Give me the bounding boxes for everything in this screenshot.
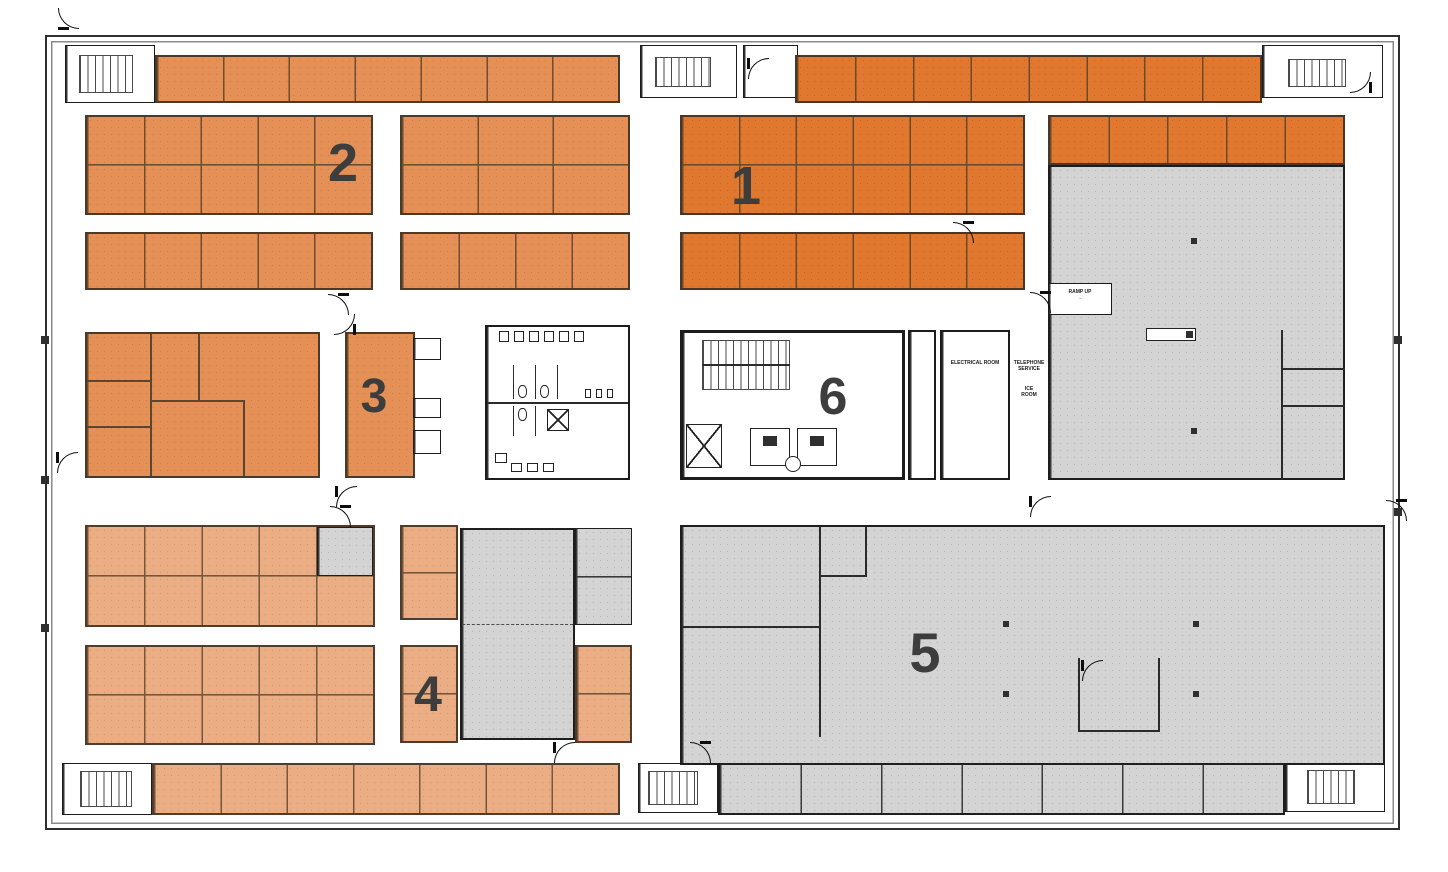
alcove: [413, 338, 441, 360]
wall: [819, 575, 867, 577]
toilet-icon: [540, 385, 549, 398]
stairs-top-right-icon: [1288, 59, 1346, 87]
lab-bench-line: [462, 624, 573, 625]
stairs-bottom-left-icon: [80, 771, 132, 807]
toilet-icon: [518, 385, 527, 398]
dock-leveler-latch: [1186, 331, 1193, 338]
wall-pilaster: [1394, 508, 1402, 516]
zone-4-right-orange: [575, 645, 632, 743]
floor-plan: ELECTRICAL ROOM TELEPHONE SERVICE ICE RO…: [0, 0, 1448, 872]
alcove: [413, 398, 441, 418]
zone-4-center-lab: [460, 528, 575, 740]
equipment-drum-icon: [785, 456, 801, 472]
wall: [1281, 368, 1345, 370]
zone-1-label: 1: [714, 158, 778, 215]
stall-wall: [535, 365, 536, 399]
sink-icon: [559, 331, 569, 342]
wall: [487, 402, 628, 404]
zone-4-left-upper: [400, 525, 458, 620]
zone-2-label: 2: [311, 135, 375, 192]
zone-4-label: 4: [400, 668, 456, 721]
stall-wall: [513, 365, 514, 399]
wall: [87, 426, 152, 428]
office-block-top-middle: [400, 115, 630, 215]
stall-wall: [557, 365, 558, 399]
urinal-icon: [607, 389, 613, 398]
wall: [1078, 730, 1160, 732]
wall-pilaster: [41, 476, 49, 484]
ice-room-label: ICE ROOM: [1012, 386, 1046, 399]
office-strip-row2-middle: [400, 232, 630, 290]
electrical-room-label: ELECTRICAL ROOM: [942, 360, 1008, 366]
column-marker: [1003, 621, 1009, 627]
alcove: [413, 430, 441, 454]
column-marker: [1191, 428, 1197, 434]
sink-icon: [527, 463, 538, 472]
wall: [243, 400, 245, 476]
urinal-icon: [585, 389, 591, 398]
column-marker: [1191, 238, 1197, 244]
sink-icon: [495, 453, 507, 463]
bottom-strip-gray-rooms: [718, 763, 1285, 815]
equipment-panel: [810, 436, 824, 446]
column-marker: [1193, 691, 1199, 697]
wall-pilaster: [41, 336, 49, 344]
elevator-icon: [686, 424, 722, 468]
zone-3-label: 3: [346, 372, 402, 422]
office-strip-row2-left: [85, 232, 373, 290]
telephone-service-label: TELEPHONE SERVICE: [1012, 360, 1046, 373]
wall: [682, 626, 821, 628]
zone-5-label: 5: [893, 624, 957, 683]
wall-pilaster: [1394, 336, 1402, 344]
zone-5-area: [680, 525, 1385, 765]
sink-icon: [511, 463, 522, 472]
stall-wall: [535, 406, 536, 436]
wall: [198, 334, 200, 402]
sink-icon: [543, 463, 554, 472]
sink-icon: [544, 331, 554, 342]
ramp-up-label: RAMP UP →: [1050, 289, 1110, 302]
door-arc: [58, 8, 79, 29]
wall: [819, 527, 821, 737]
wall: [150, 334, 152, 476]
wall-pilaster: [41, 624, 49, 632]
service-room: [908, 330, 936, 480]
stairs-top-middle-icon: [655, 57, 711, 87]
toilet-icon: [518, 408, 527, 421]
urinal-icon: [596, 389, 602, 398]
service-shaft-icon: [547, 409, 569, 431]
lower-left-block-lower: [85, 645, 375, 745]
sink-icon: [499, 331, 509, 342]
wall: [1158, 658, 1160, 732]
stairs-bottom-right-icon: [1307, 770, 1355, 804]
bottom-strip-offices: [152, 763, 620, 815]
gray-corner-room: [317, 527, 373, 576]
stall-wall: [513, 406, 514, 436]
column-marker: [1193, 621, 1199, 627]
equipment-box: [750, 428, 790, 466]
wall: [1281, 405, 1345, 407]
column-marker: [1003, 691, 1009, 697]
sink-icon: [574, 331, 584, 342]
top-strip-offices-right: [795, 55, 1262, 103]
equipment-box: [797, 428, 837, 466]
sink-icon: [514, 331, 524, 342]
wall: [87, 380, 152, 382]
stairs-top-left-icon: [79, 55, 133, 93]
offices-above-warehouse: [1048, 115, 1345, 165]
electrical-room: [940, 330, 1010, 480]
middle-left-suite: [85, 332, 320, 478]
stairs-bottom-middle-icon: [648, 771, 698, 805]
top-strip-offices-left: [155, 55, 620, 103]
zone-6-label: 6: [803, 370, 863, 425]
equipment-panel: [763, 436, 777, 446]
sink-icon: [529, 331, 539, 342]
zone-4-right-gray: [575, 528, 632, 625]
wall: [865, 527, 867, 577]
stair-rail: [702, 364, 790, 366]
